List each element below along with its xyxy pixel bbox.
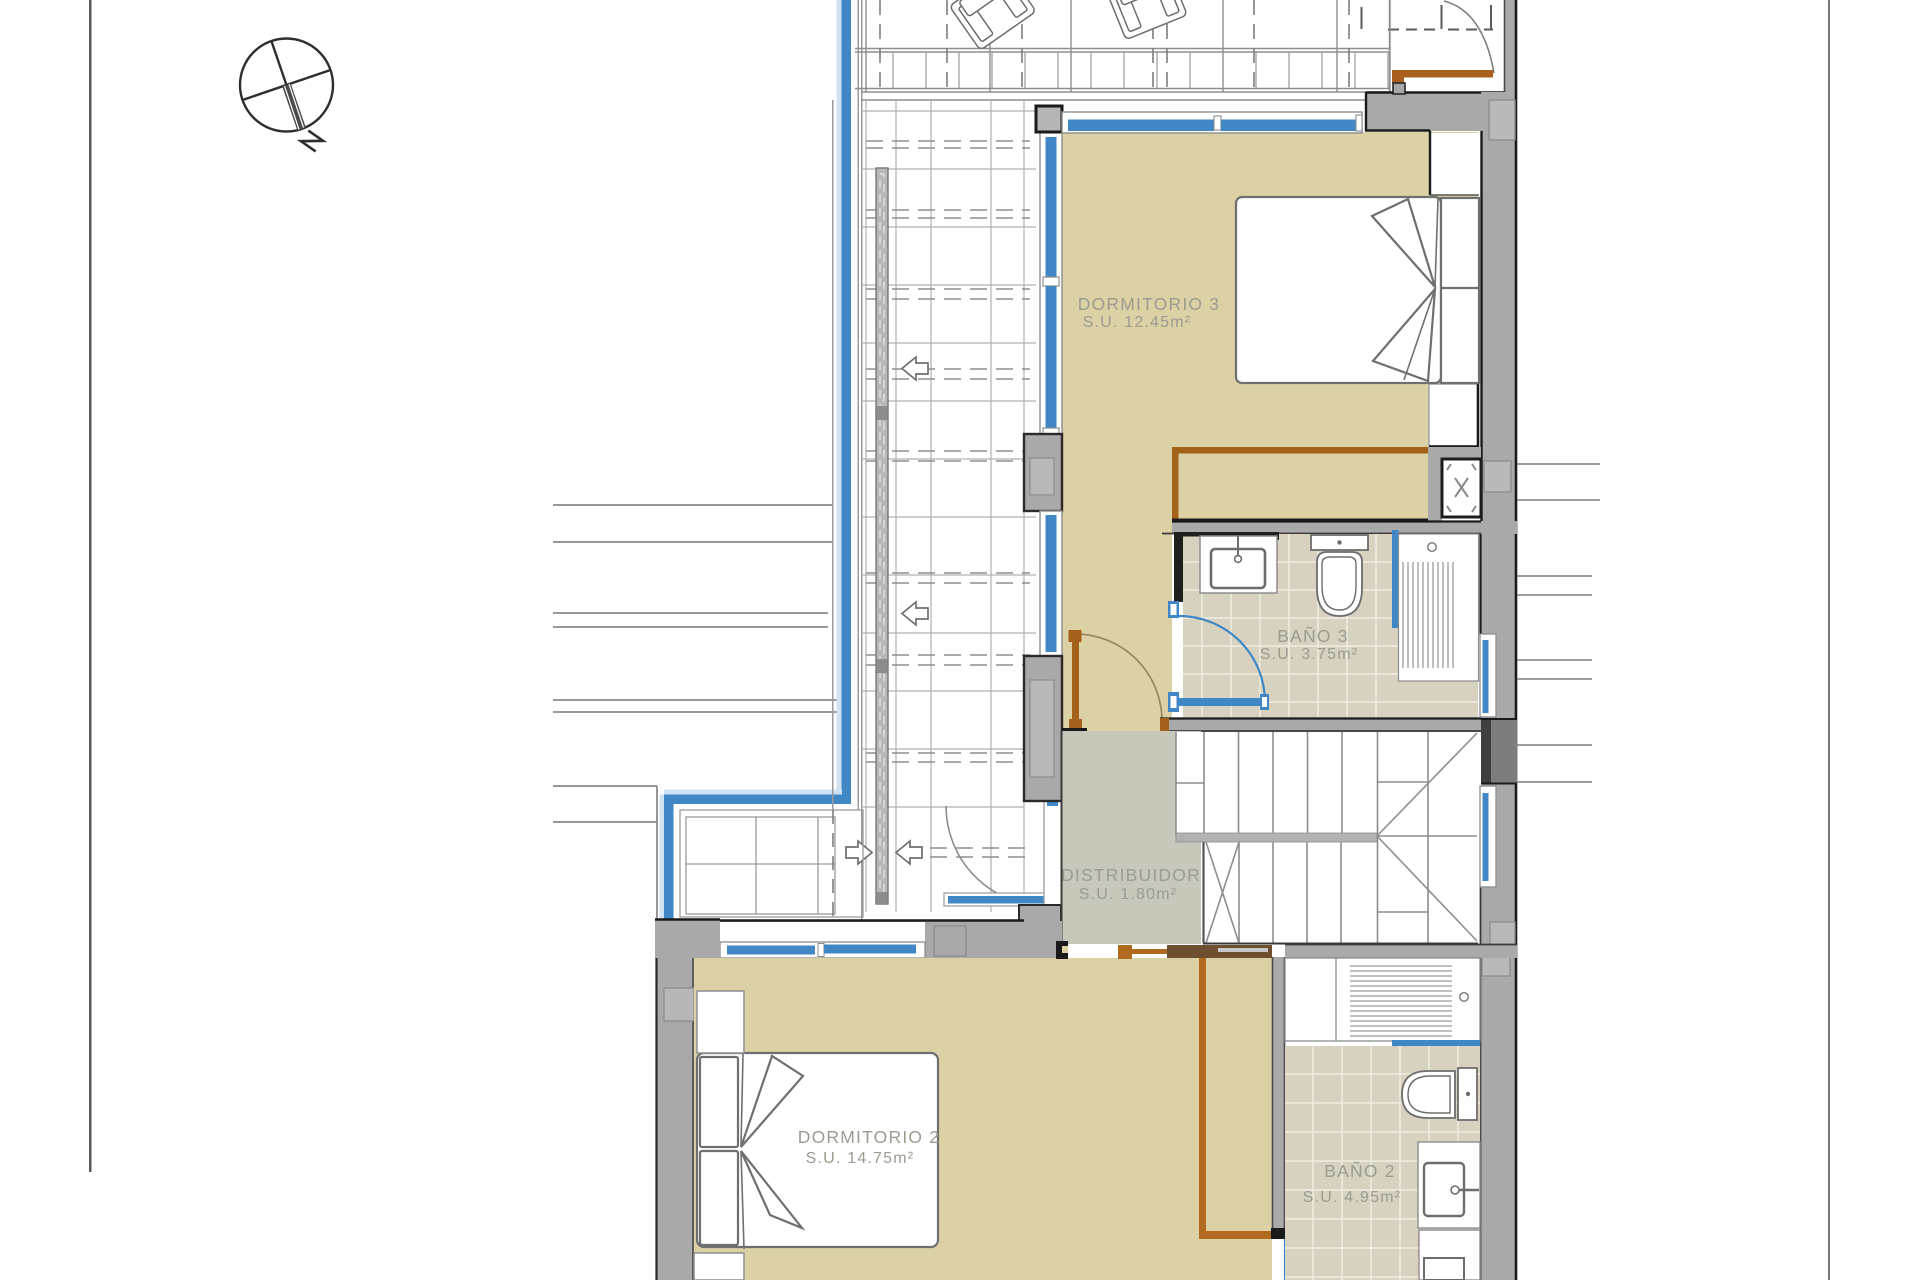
svg-text:DISTRIBUIDOR: DISTRIBUIDOR	[1061, 865, 1201, 885]
svg-text:S.U. 14.75m²: S.U. 14.75m²	[806, 1150, 915, 1167]
svg-text:DORMITORIO 3: DORMITORIO 3	[1078, 294, 1220, 314]
svg-text:S.U. 12.45m²: S.U. 12.45m²	[1083, 314, 1192, 331]
svg-text:BAÑO 3: BAÑO 3	[1277, 625, 1348, 646]
svg-text:BAÑO 2: BAÑO 2	[1324, 1160, 1395, 1181]
svg-text:DORMITORIO 2: DORMITORIO 2	[798, 1127, 940, 1147]
svg-text:S.U. 1.80m²: S.U. 1.80m²	[1079, 886, 1178, 903]
svg-text:S.U. 4.95m²: S.U. 4.95m²	[1303, 1189, 1402, 1206]
svg-text:S.U. 3.75m²: S.U. 3.75m²	[1260, 646, 1359, 663]
